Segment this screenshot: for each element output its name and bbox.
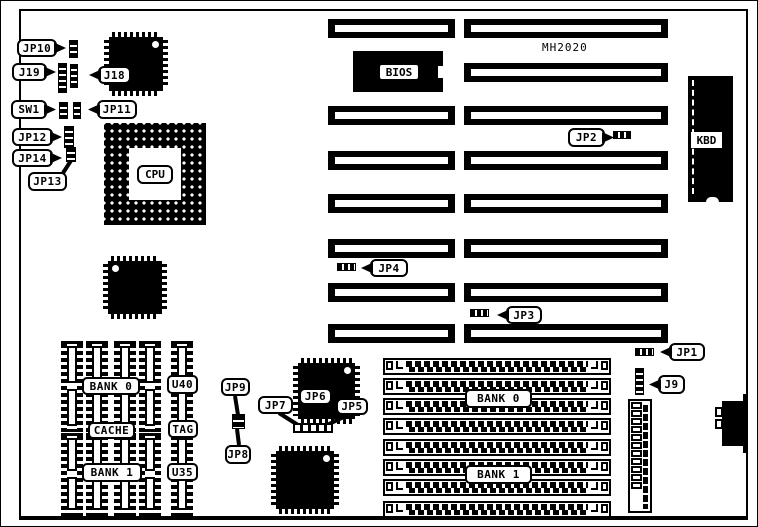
isa-slot-segment-left [328,194,455,213]
jp14-header [66,147,76,162]
label-jp9: JP9 [221,378,250,396]
isa-slot-stripe [335,330,448,337]
board-model-text: MH2020 [542,41,588,54]
berg-pin-box [631,482,642,489]
jp567-strip [293,423,333,433]
label-u40: U40 [167,375,198,394]
isa-slot-stripe [471,69,661,76]
isa-slot-stripe [471,200,661,207]
simm-socket-row-8 [383,501,611,518]
label-jp11: JP11 [97,100,137,119]
power-connector-tab [743,394,748,402]
simm-band-bot [406,510,588,515]
simm-latch-l [386,421,393,430]
isa-slot-segment-right [464,63,668,82]
dip-chip-body [67,389,77,426]
isa-slot-stripe [471,157,661,164]
qfp-top-left [104,32,168,96]
label-cache: CACHE [88,422,135,439]
berg-pin-box [631,426,642,433]
isa-slot-segment-left [328,151,455,170]
simm-latch-r [601,361,608,370]
simm-socket-row-1 [383,358,611,375]
simm-latch-r [601,462,608,471]
kbd-label: KBD [691,132,722,148]
berg-connector [628,399,652,513]
simm-rmark [591,482,598,490]
berg-connector-pin-bar [643,403,648,509]
simm-lmark [396,462,403,470]
isa-slot-stripe [335,112,448,119]
qfp-pin1-dot [112,265,119,272]
isa-slot-segment-right [464,194,668,213]
label-jp14: JP14 [12,149,53,167]
berg-pin-box [631,450,642,457]
cache-dip-column-r1-c4 [139,341,161,432]
isa-slot-stripe [471,112,661,119]
isa-slot-segment-left [328,106,455,125]
isa-slot-stripe [335,289,448,296]
berg-pin-box [631,474,642,481]
cpu-socket-center: CPU [129,148,181,200]
isa-slot-stripe [335,245,448,252]
label-jp10: JP10 [17,39,57,57]
isa-slot-segment-left [328,283,455,302]
berg-pin-box [631,434,642,441]
simm-band-bot [406,367,588,372]
simm-latch-l [386,442,393,451]
motherboard-diagram: JP10J19J18SW1JP11JP12JP14JP13JP2JP4JP3JP… [0,0,758,527]
jp12-header [64,126,74,148]
dip-chip-body [145,346,155,383]
label-j18: J18 [98,66,131,84]
simm-latch-r [601,421,608,430]
power-connector-pin-box [715,419,723,429]
simm-lmark [396,442,403,450]
qfp-pins-bottom [111,314,159,319]
jp4-jumper [337,263,356,271]
isa-slot-segment-right [464,19,668,38]
simm-latch-r [601,442,608,451]
isa-slot-segment-left [328,324,455,343]
simm-latch-r [601,401,608,410]
simm-lmark [396,361,403,369]
dip-chip-body [67,346,77,383]
qfp-pins-bottom [279,509,331,514]
label-j19: J19 [12,63,47,81]
jp2-jumper [613,131,631,139]
dip-chip-body [67,438,77,471]
isa-slot-segment-right [464,324,668,343]
isa-slot-stripe [335,157,448,164]
label-tag: TAG [168,420,198,438]
jp3-jumper [470,309,489,317]
simm-lmark [396,482,403,490]
power-connector-tab [743,445,748,453]
isa-slot-stripe [471,25,661,32]
isa-slot-segment-right [464,151,668,170]
qfp-pins-right [334,454,339,506]
jp9-block [232,414,245,429]
label-bank1-cache: BANK 1 [82,463,142,482]
cpu-label: CPU [137,165,173,184]
simm-lmark [396,504,403,512]
qfp-pins-bottom [112,91,160,96]
bios-label: BIOS [378,63,420,81]
isa-slot-segment-left [328,19,455,38]
cache-dip-column-r2-c4 [139,433,161,516]
label-j9: J9 [658,375,685,394]
jp1-jumper [635,348,654,356]
simm-rmark [591,462,598,470]
power-connector-body [722,401,748,446]
simm-rmark [591,442,598,450]
simm-latch-r [601,504,608,513]
simm-lmark [396,381,403,389]
label-bank1-simm: BANK 1 [465,465,532,484]
berg-pin-box [631,458,642,465]
isa-slot-stripe [471,330,661,337]
label-u35: U35 [167,463,198,481]
cache-dip-column-r1-c1 [61,341,83,432]
simm-lmark [396,421,403,429]
berg-pin-box [631,442,642,449]
simm-rmark [591,504,598,512]
simm-latch-l [386,381,393,390]
label-jp2: JP2 [568,128,605,147]
label-jp3: JP3 [506,306,542,324]
label-jp8: JP8 [225,445,251,464]
dip-pin-ladder-right [155,436,161,513]
cpu-socket: CPU [104,123,206,225]
keyboard-connector-notch [706,197,719,202]
dip-chip-body [145,477,155,510]
qfp-below-cpu [103,256,167,319]
keyboard-connector: KBD [688,76,733,202]
simm-socket-row-5 [383,439,611,456]
simm-latch-r [601,482,608,491]
bios-chip: BIOS [353,51,443,92]
simm-rmark [591,381,598,389]
qfp-pins-right [163,40,168,88]
power-connector-pin-box [715,407,723,417]
simm-lmark [396,401,403,409]
label-jp7: JP7 [258,396,293,414]
label-jp6: JP6 [299,388,332,405]
simm-band-bot [406,427,588,432]
qfp-pins-right [162,264,167,311]
qfp-middle-bottom [271,446,339,514]
simm-socket-row-4 [383,418,611,435]
berg-pin-box [631,466,642,473]
isa-slot-segment-left [328,239,455,258]
simm-rmark [591,421,598,429]
qfp-pin1-dot [344,367,351,374]
dip-chip-body [145,389,155,426]
berg-pin-box [631,410,642,417]
isa-slot-stripe [335,200,448,207]
simm-band-bot [406,448,588,453]
label-bank0-cache: BANK 0 [82,377,140,395]
berg-pin-box [631,418,642,425]
simm-latch-l [386,361,393,370]
isa-slot-stripe [471,289,661,296]
sw1-header-b [73,102,81,119]
bios-chip-notch [438,66,443,78]
simm-latch-l [386,504,393,513]
isa-slot-segment-right [464,283,668,302]
simm-rmark [591,401,598,409]
dip-chip-body [145,438,155,471]
label-sw1: SW1 [11,100,47,119]
j19-header-b [70,64,78,88]
simm-band-bot [406,488,588,493]
isa-slot-stripe [335,25,448,32]
simm-latch-l [386,482,393,491]
label-jp13: JP13 [28,172,67,191]
label-bank0-simm: BANK 0 [465,389,532,408]
sw1-header-a [59,102,68,119]
simm-latch-r [601,381,608,390]
dip-pin-ladder-right [155,344,161,429]
simm-rmark [591,361,598,369]
j9-header [635,368,644,395]
label-jp12: JP12 [12,128,53,146]
label-jp4: JP4 [370,259,408,277]
dip-chip-body [67,477,77,510]
cache-dip-column-r2-c1 [61,433,83,516]
j19-header-a [58,63,67,93]
jp10-header [69,40,78,58]
simm-latch-l [386,401,393,410]
dip-chip-body [177,477,187,510]
isa-slot-stripe [471,245,661,252]
qfp-pin1-dot [152,41,159,48]
simm-latch-l [386,462,393,471]
berg-pin-box [631,402,642,409]
qfp-pin1-dot [323,455,330,462]
label-jp5: JP5 [336,398,368,415]
label-jp1: JP1 [669,343,705,361]
isa-slot-segment-right [464,106,668,125]
isa-slot-segment-right [464,239,668,258]
